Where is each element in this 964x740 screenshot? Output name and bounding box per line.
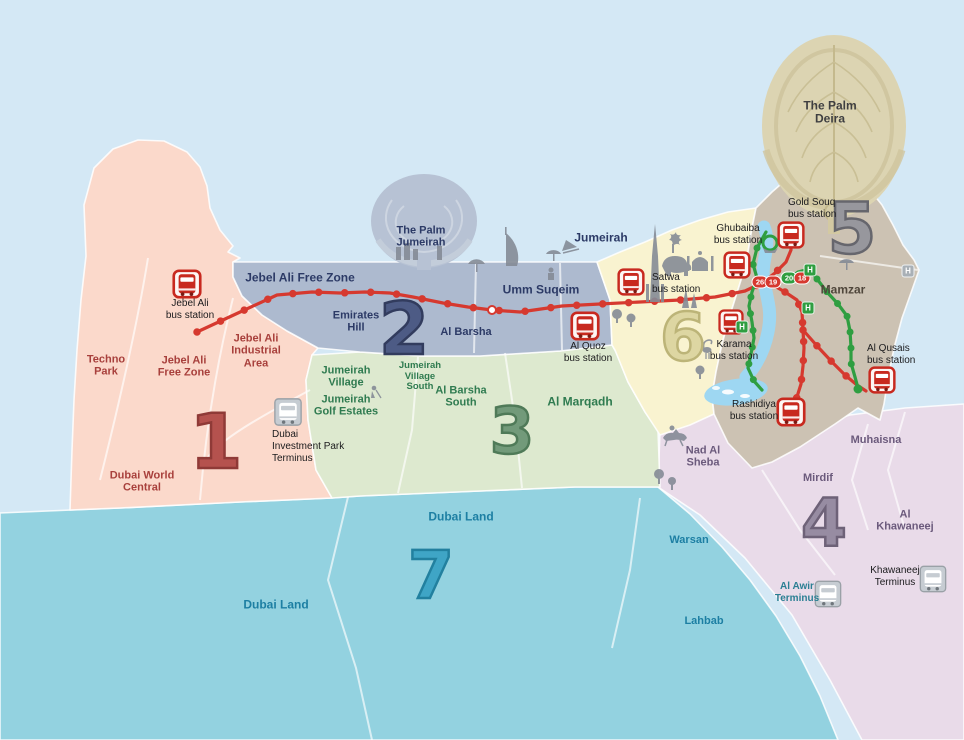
zone2-numeral: 2 — [379, 293, 429, 365]
area-label-umm-suqeim: Umm Suqeim — [503, 283, 580, 296]
ghubaiba-bus-station-icon — [723, 251, 751, 279]
jebel-ali-bus-station-icon — [172, 269, 202, 299]
station-label-satwa: Satwa bus station — [652, 272, 700, 296]
area-label-warsan: Warsan — [669, 534, 708, 546]
landmark-label-palm-jumeirah: The Palm Jumeirah — [397, 225, 446, 250]
person-icon — [548, 268, 554, 281]
zone7-numeral: 7 — [408, 543, 454, 609]
gold-souq-bus-station-icon — [777, 221, 805, 249]
station-label-al-qusais: Al Qusais bus station — [867, 343, 915, 367]
terminus-label-al-awir: Al Awir Terminus — [775, 581, 819, 605]
palm-jumeirah-island — [371, 174, 477, 270]
area-label-al-khawaneej: Al Khawaneej — [876, 509, 935, 534]
h-marker-grey: H — [903, 266, 914, 277]
area-label-mirdif: Mirdif — [803, 472, 833, 484]
terminus-label-khawaneej: Khawaneej Terminus — [870, 565, 919, 589]
terminus-label-dip: Dubai Investment Park Terminus — [272, 429, 344, 464]
zone6-numeral: 6 — [660, 305, 706, 371]
area-label-jebel-ali-industrial: Jebel Ali Industrial Area — [231, 333, 281, 370]
station-label-karama: Karama bus station — [710, 339, 758, 363]
area-label-emirates-hill: Emirates Hill — [333, 310, 379, 335]
dip-terminus-icon — [274, 398, 302, 426]
station-label-gold-souq: Gold Souq bus station — [788, 197, 836, 221]
zone3-numeral: 3 — [490, 400, 535, 464]
area-label-dubai-world-central: Dubai World Central — [110, 470, 175, 495]
area-label-mamzar: Mamzar — [821, 283, 866, 296]
al-quoz-bus-station-icon — [570, 311, 600, 341]
area-label-al-marqadh: Al Marqadh — [547, 395, 612, 408]
station-label-jebel-ali: Jebel Ali bus station — [166, 298, 214, 322]
area-label-dubai-land-2: Dubai Land — [243, 598, 308, 611]
area-label-jebel-ali-free-zone: Jebel Ali Free Zone — [158, 355, 211, 380]
station-label-rashidiya: Rashidiya bus station — [730, 399, 778, 423]
umbrella-icon-2 — [546, 250, 561, 261]
route-interchange-ring — [488, 306, 496, 314]
area-label-lahbab: Lahbab — [684, 615, 723, 627]
area-label-techno-park: Techno Park — [87, 354, 125, 379]
area-label-al-barsha: Al Barsha — [440, 326, 491, 338]
rashidiya-bus-station-icon — [776, 397, 806, 427]
al-qusais-bus-station-icon — [868, 366, 896, 394]
zone4-numeral: 4 — [801, 491, 847, 557]
satwa-bus-station-icon — [617, 268, 645, 296]
area-label-dubai-land: Dubai Land — [428, 510, 493, 523]
h-marker-1: H — [805, 265, 816, 276]
landmark-label-palm-deira: The Palm Deira — [803, 100, 856, 127]
khawaneej-terminus-icon — [920, 566, 947, 593]
area-label-jumeirah-village: Jumeirah Village — [322, 365, 371, 390]
burj-al-arab-icon — [505, 227, 518, 266]
area-label-jafz-strip: Jebel Ali Free Zone — [245, 271, 355, 284]
h-marker-2: H — [803, 303, 814, 314]
area-label-muhaisna: Muhaisna — [851, 434, 902, 446]
station-label-al-quoz: Al Quoz bus station — [564, 341, 612, 365]
route-badge-19: 19 — [766, 277, 781, 288]
dubai-zone-map: 1 2 3 4 5 6 7 Techno Park Jebel Ali Free… — [0, 0, 964, 740]
station-label-ghubaiba: Ghubaiba bus station — [714, 223, 762, 247]
zone1-numeral: 1 — [190, 404, 243, 480]
area-label-nad-al-sheba: Nad Al Sheba — [686, 445, 720, 470]
h-marker-karama: H — [737, 322, 748, 333]
area-label-jumeirah-golf-estates: Jumeirah Golf Estates — [314, 394, 378, 419]
area-label-jumeirah: Jumeirah — [574, 231, 627, 244]
area-label-al-barsha-south: Al Barsha South — [435, 385, 486, 410]
